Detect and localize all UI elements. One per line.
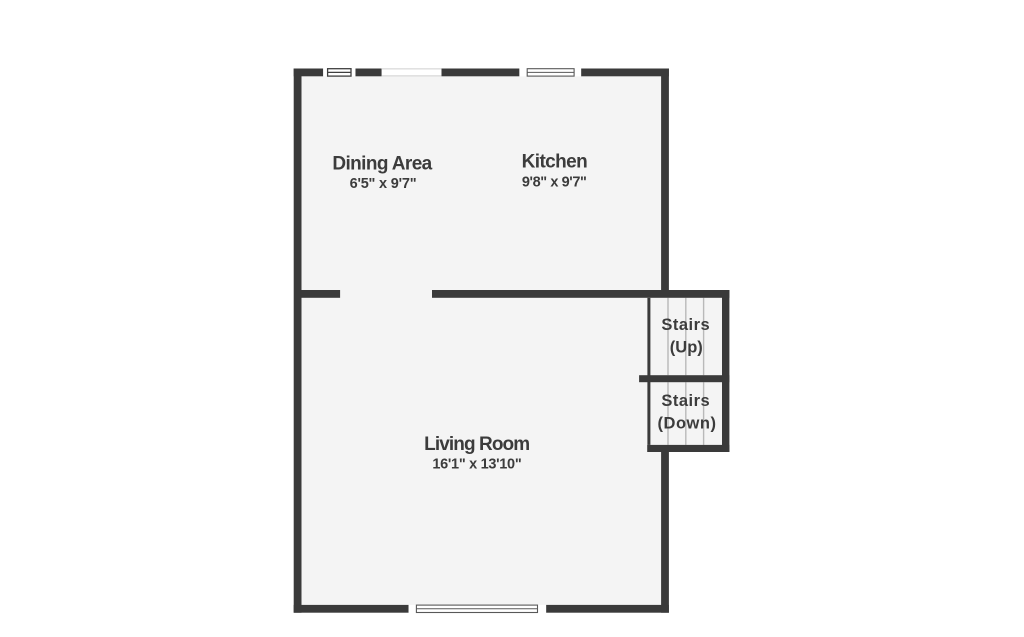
- svg-text:Stairs: Stairs: [661, 316, 710, 334]
- svg-text:9'8" x 9'7": 9'8" x 9'7": [522, 175, 587, 191]
- svg-text:(Up): (Up): [670, 338, 703, 356]
- svg-text:Kitchen: Kitchen: [522, 152, 587, 173]
- svg-text:6'5" x 9'7": 6'5" x 9'7": [350, 176, 417, 192]
- svg-text:(Down): (Down): [658, 415, 717, 433]
- svg-text:Stairs: Stairs: [661, 392, 710, 410]
- svg-text:16'1" x 13'10": 16'1" x 13'10": [432, 457, 521, 473]
- svg-text:Living Room: Living Room: [424, 434, 529, 455]
- svg-text:Dining Area: Dining Area: [332, 154, 432, 175]
